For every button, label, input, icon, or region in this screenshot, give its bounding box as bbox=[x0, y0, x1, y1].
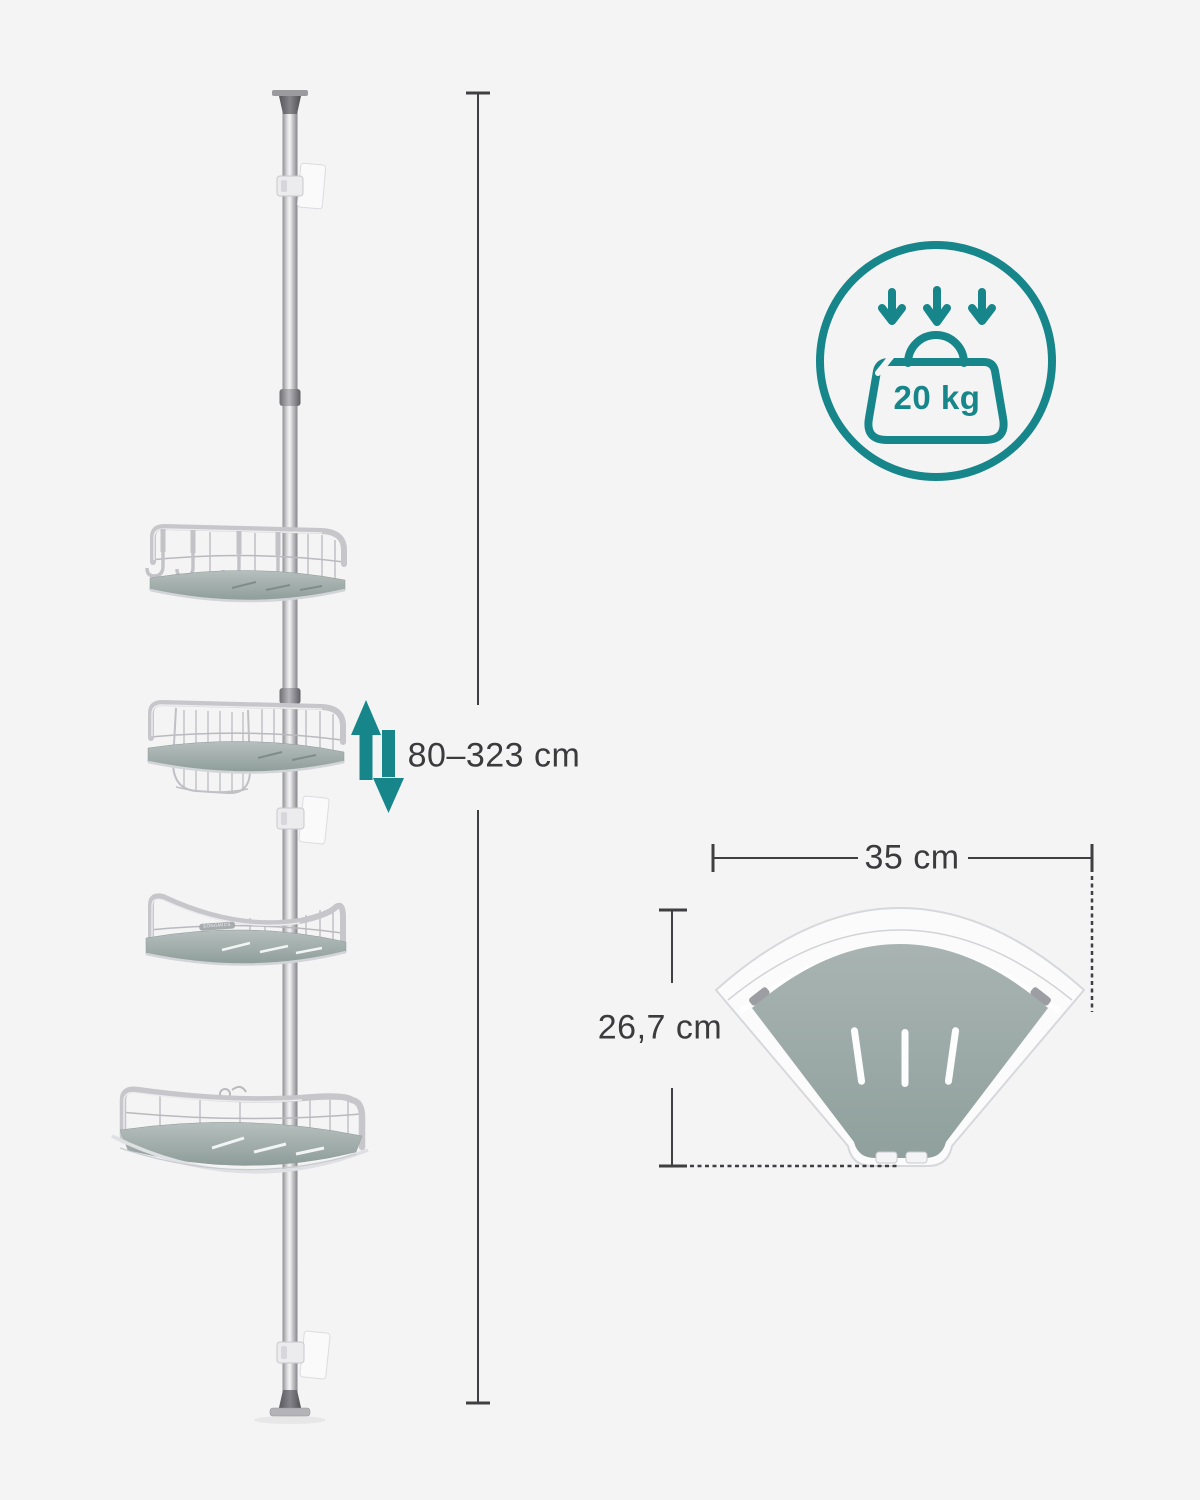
shelf-1-hook-tray bbox=[147, 527, 345, 601]
shelf-2-basket-tray bbox=[148, 703, 344, 793]
illustration-layer bbox=[0, 0, 1200, 1500]
max-load-label: 20 kg bbox=[894, 379, 981, 417]
weight-bag-icon bbox=[820, 245, 1052, 477]
shelf-3-tray bbox=[146, 896, 346, 964]
height-range-label: 80–323 cm bbox=[408, 737, 581, 776]
depth-label: 26,7 cm bbox=[598, 1009, 722, 1048]
width-label: 35 cm bbox=[864, 839, 959, 878]
shower-caddy-render bbox=[112, 90, 368, 1424]
floor-plate bbox=[270, 1408, 310, 1416]
shelf-4-towel-tray bbox=[112, 1087, 368, 1172]
pole-joint-collar bbox=[280, 688, 301, 704]
triple-down-arrow-icon bbox=[882, 290, 992, 322]
product-infographic: 80–323 cm 20 kg 35 cm 26,7 cm SONGMICS bbox=[0, 0, 1200, 1500]
tray-top-view bbox=[659, 844, 1092, 1166]
ceiling-plate bbox=[272, 90, 308, 96]
ceiling-cap bbox=[279, 96, 301, 114]
tray-surface bbox=[752, 944, 1048, 1158]
pole-joint-collar bbox=[280, 389, 301, 406]
up-down-arrow-icon bbox=[351, 700, 404, 813]
